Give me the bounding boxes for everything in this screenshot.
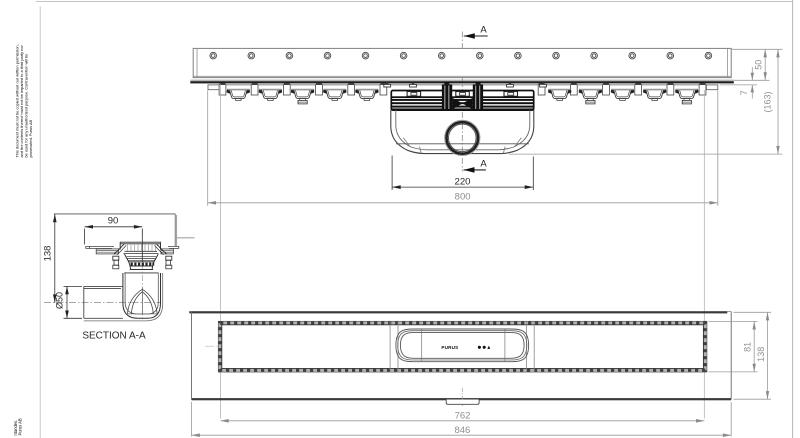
svg-text:846: 846 <box>454 425 470 436</box>
svg-text:prosecuted. Purus AB: prosecuted. Purus AB <box>28 119 33 157</box>
svg-text:800: 800 <box>455 192 471 203</box>
svg-text:7: 7 <box>739 90 749 95</box>
svg-text:220: 220 <box>454 177 470 188</box>
svg-text:81: 81 <box>742 342 752 352</box>
svg-text:(163): (163) <box>763 91 773 112</box>
svg-text:762: 762 <box>455 411 471 422</box>
svg-text:SECTION A-A: SECTION A-A <box>82 331 146 342</box>
svg-text:PURUS: PURUS <box>441 345 458 350</box>
svg-text:Purus AB: Purus AB <box>18 418 23 435</box>
svg-text:90: 90 <box>108 216 119 227</box>
svg-text:A: A <box>480 25 487 36</box>
svg-text:Ø50: Ø50 <box>55 292 65 309</box>
svg-text:138: 138 <box>42 246 53 262</box>
svg-text:A: A <box>480 159 487 170</box>
svg-text:138: 138 <box>756 347 766 362</box>
svg-text:50: 50 <box>754 60 764 70</box>
